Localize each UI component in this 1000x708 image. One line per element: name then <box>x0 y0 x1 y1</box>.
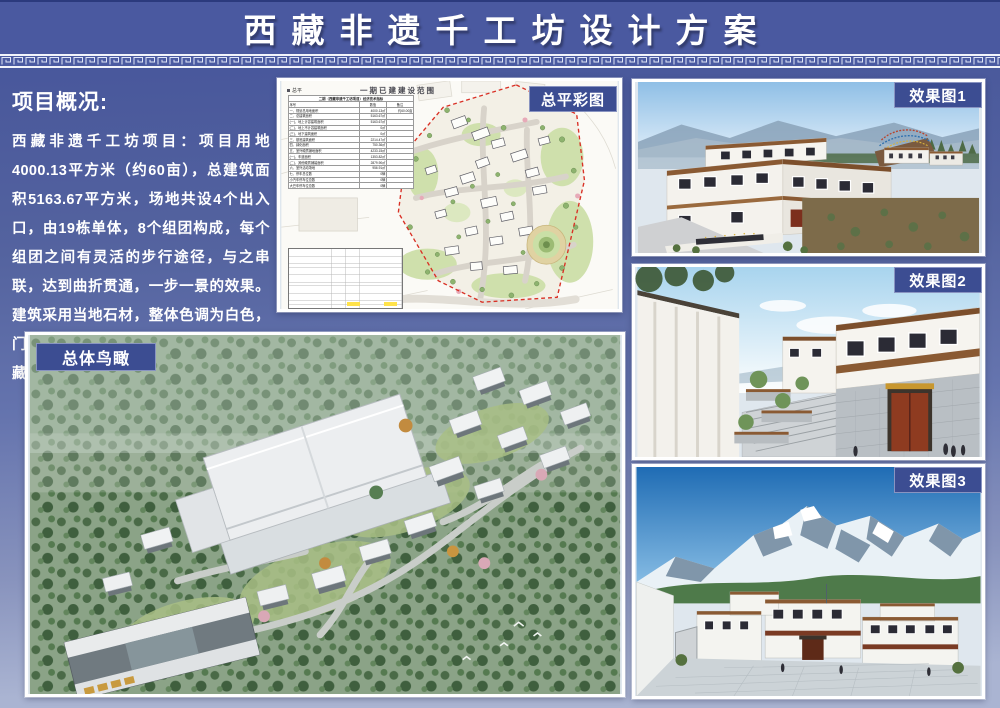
econ-table: 二期（西藏非遗千工坊项目）经济技术指标 序号数值备注 一、规划总用地面积4000… <box>288 95 414 189</box>
aerial-label: 总体鸟瞰 <box>36 343 156 371</box>
render-1-panel: 效果图1 <box>632 79 985 256</box>
meander-pattern <box>0 56 1000 66</box>
site-plan-panel: 一期已建建设范围 总平 二期（西藏非遗千工坊项目）经济技术指标 序号数值备注 一… <box>277 78 622 312</box>
render-3-illustration <box>635 467 982 696</box>
decorative-border-band <box>0 54 1000 68</box>
legend-square-icon <box>287 89 290 92</box>
render-2-label: 效果图2 <box>894 267 982 293</box>
aerial-image: 总体鸟瞰 <box>28 335 622 694</box>
page-title: 西藏非遗千工坊设计方案 <box>229 4 772 52</box>
legend-label: 总平 <box>292 87 302 94</box>
main-door <box>886 383 934 451</box>
econ-table-row: 大巴车停车位总数0辆 <box>289 183 414 189</box>
render-3-panel: 效果图3 <box>632 464 985 699</box>
poster: 西藏非遗千工坊设计方案 项目概况: 西藏非遗千工坊项目：项目用地4000.13平… <box>0 0 1000 708</box>
render-2-panel: 效果图2 <box>632 264 985 460</box>
overview-heading: 项目概况: <box>12 86 270 116</box>
aerial-illustration <box>28 335 622 694</box>
site-plan-legend: 总平 <box>287 87 302 94</box>
site-plan-label: 总平彩图 <box>529 86 617 112</box>
circular-garden <box>527 225 566 264</box>
area-stats-table <box>288 248 403 309</box>
site-plan-image: 一期已建建设范围 总平 二期（西藏非遗千工坊项目）经济技术指标 序号数值备注 一… <box>280 81 619 309</box>
right-building <box>836 308 979 457</box>
render-1-label: 效果图1 <box>894 82 982 108</box>
title-bar: 西藏非遗千工坊设计方案 <box>0 2 1000 54</box>
render-1-image: 效果图1 <box>635 82 982 253</box>
aerial-panel: 总体鸟瞰 <box>25 332 625 697</box>
render-2-image: 效果图2 <box>635 267 982 457</box>
render-3-label: 效果图3 <box>894 467 982 493</box>
render-3-image: 效果图3 <box>635 467 982 696</box>
stats-highlight-cell <box>384 302 397 306</box>
econ-table-body: 一、规划总用地面积4000.13㎡约60.00亩二、总建筑面积5163.67㎡(… <box>289 108 414 189</box>
stats-highlight-cell <box>347 302 360 306</box>
render-2-illustration <box>635 267 982 457</box>
